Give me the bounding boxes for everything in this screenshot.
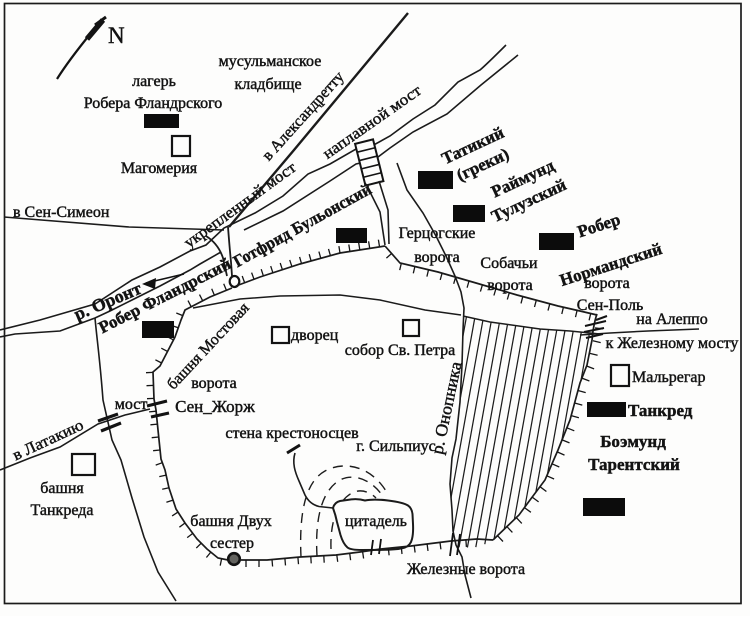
- svg-text:N: N: [108, 23, 125, 48]
- svg-text:ворота: ворота: [191, 375, 237, 392]
- svg-text:г. Сильпиус: г. Сильпиус: [356, 438, 436, 455]
- svg-text:Герцогские: Герцогские: [399, 225, 476, 242]
- svg-text:сестер: сестер: [210, 535, 254, 552]
- svg-text:ворота: ворота: [487, 277, 533, 294]
- svg-text:Магомерия: Магомерия: [121, 160, 198, 177]
- svg-text:ворота: ворота: [584, 275, 630, 292]
- svg-text:Боэмунд: Боэмунд: [600, 432, 666, 451]
- svg-text:собор Св. Петра: собор Св. Петра: [345, 342, 455, 359]
- svg-text:Собачьи: Собачьи: [480, 255, 538, 272]
- svg-text:Сен_Жорж: Сен_Жорж: [175, 397, 255, 416]
- svg-text:башня: башня: [40, 480, 84, 497]
- svg-text:к Железному мосту: к Железному мосту: [606, 335, 739, 352]
- svg-text:на Алеппо: на Алеппо: [636, 311, 707, 328]
- svg-text:стена крестоносцев: стена крестоносцев: [225, 425, 359, 442]
- svg-text:Железные ворота: Железные ворота: [407, 561, 525, 578]
- svg-text:дворец: дворец: [291, 327, 339, 344]
- svg-text:башня Двух: башня Двух: [190, 513, 271, 530]
- svg-text:Робера Фландрского: Робера Фландрского: [84, 95, 223, 112]
- svg-text:мусульманское: мусульманское: [219, 53, 322, 70]
- svg-text:Танкред: Танкред: [628, 401, 693, 420]
- svg-text:Сен-Поль: Сен-Поль: [577, 297, 643, 314]
- svg-text:ворота: ворота: [414, 249, 460, 266]
- svg-text:Танкреда: Танкреда: [31, 502, 94, 519]
- svg-text:мост: мост: [115, 396, 148, 413]
- svg-text:Тарентский: Тарентский: [588, 455, 680, 474]
- svg-text:Мальрегар: Мальрегар: [632, 369, 706, 386]
- svg-text:кладбище: кладбище: [234, 76, 301, 93]
- svg-text:цитадель: цитадель: [345, 513, 407, 530]
- svg-text:в Сен-Симеон: в Сен-Симеон: [13, 204, 110, 221]
- svg-text:лагерь: лагерь: [132, 73, 176, 90]
